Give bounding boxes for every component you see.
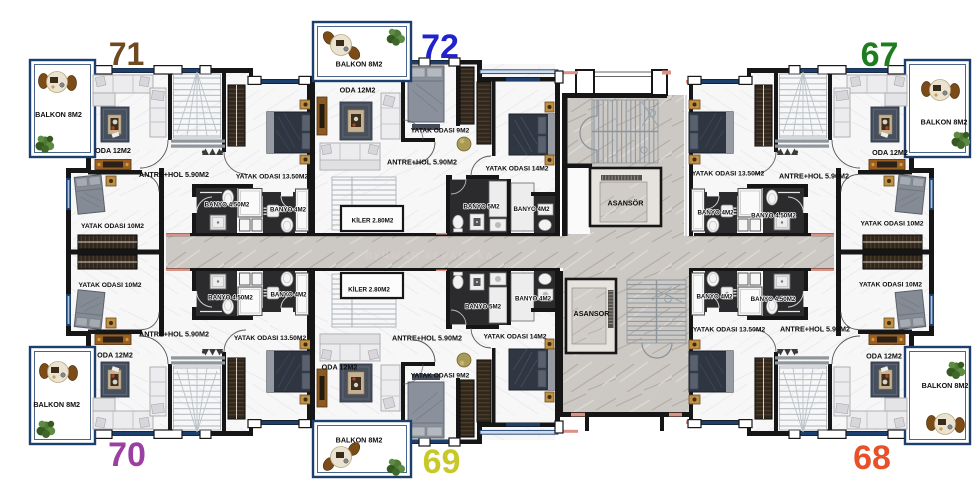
svg-text:BANYO 4M2: BANYO 4M2: [270, 292, 307, 299]
svg-text:ANTRE+HOL 5.90M2: ANTRE+HOL 5.90M2: [780, 325, 850, 334]
svg-text:ODA 12M2: ODA 12M2: [872, 148, 908, 157]
svg-text:YATAK ODASI 13.50M2: YATAK ODASI 13.50M2: [693, 327, 766, 334]
svg-text:ODA 12M2: ODA 12M2: [340, 86, 376, 95]
svg-text:BANYO 4M2: BANYO 4M2: [270, 207, 307, 214]
svg-text:YATAK ODASI 14M2: YATAK ODASI 14M2: [485, 166, 548, 173]
svg-text:ЛУЧШАЯ КЕРАМИКА: ЛУЧШАЯ КЕРАМИКА: [365, 251, 494, 261]
svg-text:KİLER 2.80M2: KİLER 2.80M2: [352, 217, 394, 225]
svg-text:BANYO 4.50M2: BANYO 4.50M2: [751, 296, 796, 303]
svg-text:ASANSOR: ASANSOR: [574, 309, 611, 318]
svg-text:BALKON 8M2: BALKON 8M2: [336, 436, 383, 445]
svg-text:ODA 12M2: ODA 12M2: [97, 351, 133, 360]
svg-text:ANTRE+HOL 5.90M2: ANTRE+HOL 5.90M2: [779, 172, 849, 181]
svg-text:ODA 12M2: ODA 12M2: [322, 363, 358, 372]
svg-text:70: 70: [108, 436, 146, 474]
svg-text:BANYO 4.50M2: BANYO 4.50M2: [751, 213, 796, 220]
svg-text:BALKON 8M2: BALKON 8M2: [921, 118, 968, 127]
svg-text:BALKON 8M2: BALKON 8M2: [922, 381, 969, 390]
svg-text:BANYO 4M2: BANYO 4M2: [696, 294, 733, 301]
svg-text:YATAK ODASI 9M2: YATAK ODASI 9M2: [411, 373, 470, 380]
svg-text:BANYO 5M2: BANYO 5M2: [465, 304, 502, 311]
svg-text:ANTRE+HOL 5.90M2: ANTRE+HOL 5.90M2: [139, 170, 209, 179]
svg-text:BANYO 4M2: BANYO 4M2: [697, 210, 734, 217]
svg-text:68: 68: [853, 439, 891, 477]
svg-text:BANYO 4.50M2: BANYO 4.50M2: [208, 295, 253, 302]
svg-text:YATAK ODASI 13.50M2: YATAK ODASI 13.50M2: [236, 174, 309, 181]
svg-text:69: 69: [423, 443, 461, 480]
svg-text:71: 71: [109, 36, 145, 72]
svg-text:YATAK ODASI 13.50M2: YATAK ODASI 13.50M2: [234, 335, 307, 342]
svg-text:BALKON 8M2: BALKON 8M2: [33, 400, 80, 409]
svg-text:YATAK ODASI 13.50M2: YATAK ODASI 13.50M2: [692, 171, 765, 178]
svg-text:YATAK ODASI 10M2: YATAK ODASI 10M2: [78, 282, 141, 289]
svg-text:ODA 12M2: ODA 12M2: [866, 352, 902, 361]
svg-text:72: 72: [421, 28, 459, 66]
svg-text:YATAK ODASI 14M2: YATAK ODASI 14M2: [483, 334, 546, 341]
svg-text:YATAK ODASI 10M2: YATAK ODASI 10M2: [81, 223, 144, 230]
svg-text:KİLER 2.80M2: KİLER 2.80M2: [348, 286, 390, 294]
svg-text:YATAK ODASI 9M2: YATAK ODASI 9M2: [411, 128, 470, 135]
svg-text:YATAK ODASI 10M2: YATAK ODASI 10M2: [860, 221, 923, 228]
svg-text:BANYO 4M2: BANYO 4M2: [515, 296, 552, 303]
svg-text:67: 67: [861, 36, 899, 74]
svg-text:ANTRE+HOL 5.90M2: ANTRE+HOL 5.90M2: [392, 334, 462, 343]
svg-text:BALKON 8M2: BALKON 8M2: [336, 60, 383, 69]
svg-text:ANTRE+HOL 5.90M2: ANTRE+HOL 5.90M2: [387, 158, 457, 167]
svg-text:ASANSÖR: ASANSÖR: [608, 199, 645, 208]
svg-text:ODA 12M2: ODA 12M2: [95, 146, 131, 155]
svg-text:ANTRE+HOL 5.90M2: ANTRE+HOL 5.90M2: [139, 330, 209, 339]
svg-text:BALKON 8M2: BALKON 8M2: [35, 110, 82, 119]
svg-text:BANYO 4.50M2: BANYO 4.50M2: [205, 202, 250, 209]
svg-text:BANYO 5M2: BANYO 5M2: [463, 204, 500, 211]
svg-text:BANYO 4M2: BANYO 4M2: [513, 206, 550, 213]
svg-text:YATAK ODASI 10M2: YATAK ODASI 10M2: [859, 282, 922, 289]
